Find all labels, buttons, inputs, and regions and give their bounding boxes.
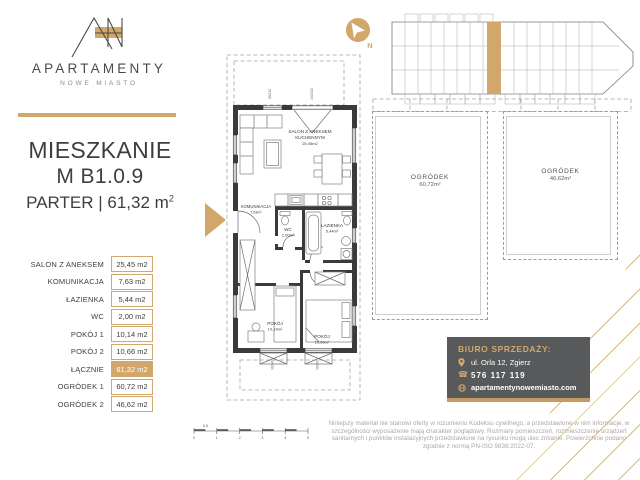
scale-tick: 5 bbox=[307, 436, 309, 440]
brand-name: APARTAMENTY bbox=[8, 61, 190, 76]
scale-tick: 2 bbox=[239, 436, 241, 440]
garden-2-inner bbox=[506, 116, 611, 255]
room1-label: POKÓJ bbox=[267, 320, 283, 326]
sq-sup: 2 bbox=[169, 193, 174, 203]
scale-tick: 3 bbox=[261, 436, 263, 440]
row-label: OGRÓDEK 2 bbox=[6, 400, 111, 409]
scale-tick: 4 bbox=[284, 436, 286, 440]
table-row: SALON Z ANEKSEM25,45 m2 bbox=[6, 256, 153, 272]
floor-and-area: PARTER | 61,32 m2 bbox=[5, 193, 195, 213]
salon-area: 25,45m2 bbox=[302, 141, 318, 146]
window-dim: 90/240 bbox=[271, 360, 275, 370]
scale-tick: 1 bbox=[216, 436, 218, 440]
unit-type-title: MIESZKANIE bbox=[5, 137, 195, 164]
wc-area: 2,00m² bbox=[282, 233, 295, 238]
wc-label: WC bbox=[284, 227, 292, 232]
table-row: POKÓJ 210,66 m2 bbox=[6, 344, 153, 360]
row-value: 46,62 m2 bbox=[111, 396, 153, 412]
garden-1-label: OGRÓDEK 60,72m² bbox=[373, 174, 487, 188]
row-value: 7,63 m2 bbox=[111, 274, 153, 290]
row-value: 10,66 m2 bbox=[111, 344, 153, 360]
room1-area: 10,14m² bbox=[268, 327, 283, 332]
table-row: OGRÓDEK 246,62 m2 bbox=[6, 396, 153, 412]
bathroom-area: 5,44m² bbox=[326, 229, 339, 234]
row-value: 5,44 m2 bbox=[111, 291, 153, 307]
salon-label: SALON Z ANEKSEM bbox=[288, 129, 331, 134]
table-row: OGRÓDEK 160,72 m2 bbox=[6, 379, 153, 395]
brand-logo-monogram bbox=[68, 14, 130, 60]
unit-number: M B1.0.9 bbox=[5, 165, 195, 189]
hall-area: 7,63m² bbox=[250, 211, 262, 215]
office-address-line: ul. Orla 12, Zgierz bbox=[458, 358, 580, 367]
sales-office-box: BIURO SPRZEDAŻY: ul. Orla 12, Zgierz ☎ 5… bbox=[447, 337, 590, 398]
scale-tick-half: 0,5 bbox=[203, 424, 208, 428]
row-value: 2,00 m2 bbox=[111, 309, 153, 325]
office-website-line: apartamentynowemiasto.com bbox=[458, 383, 580, 392]
row-value: 25,45 m2 bbox=[111, 256, 153, 272]
north-label: N bbox=[367, 41, 372, 50]
phone-icon: ☎ bbox=[458, 371, 468, 379]
window-dim: 90/240 bbox=[316, 360, 320, 370]
brochure-page: APARTAMENTY NOWE MIASTO MIESZKANIE M B1.… bbox=[0, 0, 640, 480]
garden-2: OGRÓDEK 46,62m² bbox=[503, 111, 618, 260]
garden-area: 46,62m² bbox=[504, 176, 617, 182]
garden-name: OGRÓDEK bbox=[373, 174, 487, 181]
room2-area: 10,66m² bbox=[315, 340, 330, 345]
garden-1-inner bbox=[375, 116, 481, 315]
salon-label-2: KUCHENNYM bbox=[295, 135, 325, 140]
bathroom-label: ŁAZIENKA bbox=[321, 223, 344, 228]
window-dim: 80/210 bbox=[268, 89, 272, 99]
building-outline bbox=[373, 14, 633, 112]
gold-divider bbox=[18, 113, 176, 117]
row-value: 60,72 m2 bbox=[111, 379, 153, 395]
row-label: WC bbox=[6, 312, 111, 321]
office-gold-bar bbox=[447, 398, 590, 402]
garden-name: OGRÓDEK bbox=[504, 168, 617, 175]
globe-icon bbox=[458, 384, 468, 392]
area-table: SALON Z ANEKSEM25,45 m2 KOMUNIKACJA7,63 … bbox=[6, 256, 153, 414]
row-value: 61,32 m2 bbox=[111, 361, 153, 377]
floor-area-text: PARTER | 61,32 m bbox=[26, 193, 169, 212]
table-row: POKÓJ 110,14 m2 bbox=[6, 326, 153, 342]
location-pin-icon bbox=[458, 358, 468, 367]
brand-subtitle: NOWE MIASTO bbox=[8, 80, 190, 87]
table-row: KOMUNIKACJA7,63 m2 bbox=[6, 274, 153, 290]
window-dim: 240/210 bbox=[310, 88, 314, 100]
office-title: BIURO SPRZEDAŻY: bbox=[458, 344, 580, 354]
office-address: ul. Orla 12, Zgierz bbox=[471, 358, 531, 367]
table-row: ŁAZIENKA5,44 m2 bbox=[6, 291, 153, 307]
office-phone-line: ☎ 576 117 119 bbox=[458, 371, 580, 380]
hall-label: KOMUNIKACJA bbox=[241, 204, 271, 209]
office-phone[interactable]: 576 117 119 bbox=[471, 371, 526, 380]
row-label: ŁAZIENKA bbox=[6, 295, 111, 304]
site-plan: N bbox=[335, 8, 640, 114]
row-label: ŁĄCZNIE bbox=[6, 365, 111, 374]
north-arrow-icon: N bbox=[346, 18, 373, 50]
office-website[interactable]: apartamentynowemiasto.com bbox=[471, 383, 576, 392]
table-row: WC2,00 m2 bbox=[6, 309, 153, 325]
row-label: POKÓJ 1 bbox=[6, 330, 111, 339]
garden-area: 60,72m² bbox=[373, 182, 487, 188]
row-label: SALON Z ANEKSEM bbox=[6, 260, 111, 269]
scale-tick: 0 bbox=[193, 436, 195, 440]
highlighted-unit bbox=[487, 22, 501, 94]
scale-bar: 0 0,5 1 2 3 4 5 bbox=[192, 423, 316, 441]
row-label: KOMUNIKACJA bbox=[6, 277, 111, 286]
room2-label: POKÓJ bbox=[314, 333, 330, 339]
garden-1: OGRÓDEK 60,72m² bbox=[372, 111, 488, 320]
row-label: OGRÓDEK 1 bbox=[6, 382, 111, 391]
row-value: 10,14 m2 bbox=[111, 326, 153, 342]
table-row-total: ŁĄCZNIE61,32 m2 bbox=[6, 361, 153, 377]
garden-2-label: OGRÓDEK 46,62m² bbox=[504, 168, 617, 182]
row-label: POKÓJ 2 bbox=[6, 347, 111, 356]
